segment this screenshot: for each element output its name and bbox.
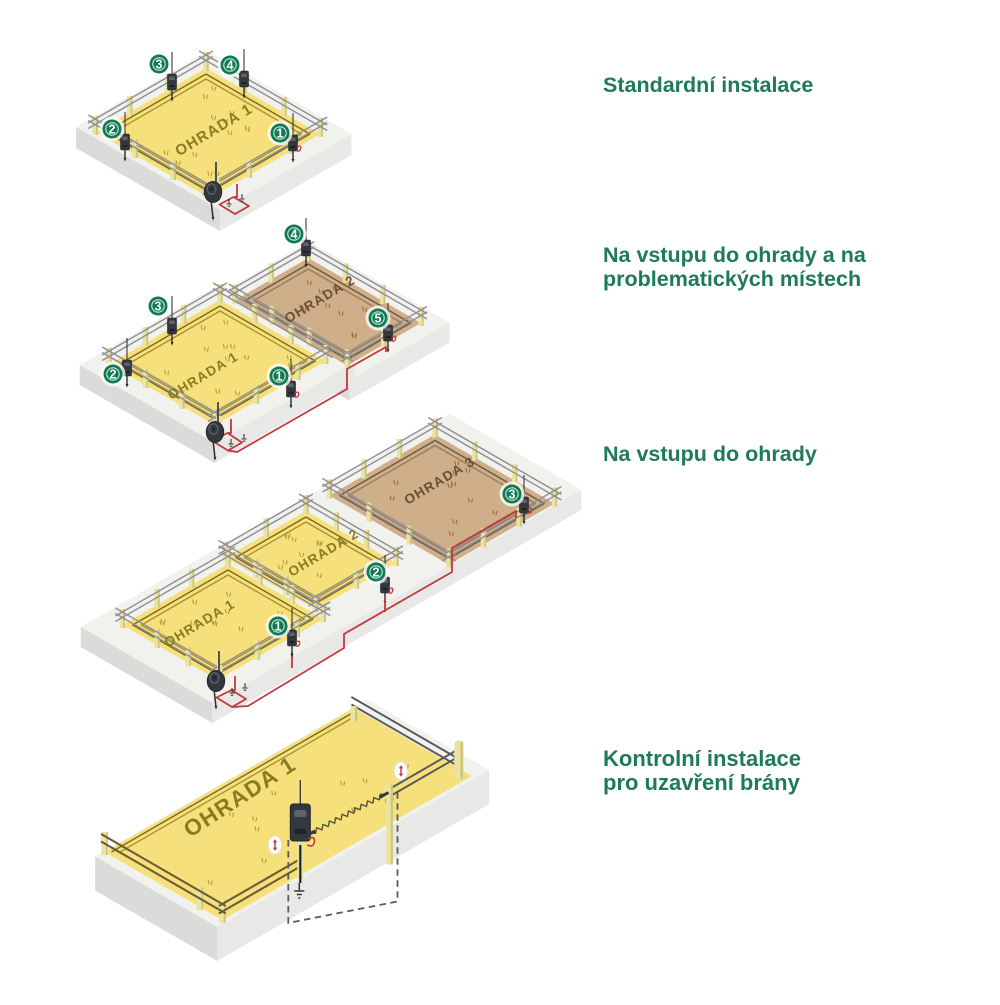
- svg-text:4: 4: [227, 58, 234, 72]
- svg-text:Kontrolní instalace: Kontrolní instalace: [603, 746, 801, 771]
- svg-text:3: 3: [155, 299, 162, 313]
- svg-text:Standardní instalace: Standardní instalace: [603, 73, 813, 97]
- svg-text:4: 4: [291, 227, 298, 241]
- svg-text:1: 1: [276, 369, 283, 383]
- svg-text:5: 5: [375, 311, 382, 325]
- svg-text:2: 2: [110, 367, 117, 381]
- svg-text:problematických místech: problematických místech: [603, 267, 861, 291]
- svg-text:1: 1: [275, 619, 282, 633]
- svg-text:2: 2: [109, 122, 116, 136]
- svg-text:2: 2: [373, 565, 380, 579]
- svg-text:3: 3: [509, 487, 516, 501]
- svg-text:pro uzavření brány: pro uzavření brány: [603, 770, 801, 795]
- svg-text:Na vstupu do ohrady: Na vstupu do ohrady: [603, 442, 817, 466]
- svg-text:1: 1: [277, 126, 284, 140]
- svg-text:3: 3: [156, 57, 163, 71]
- svg-text:Na vstupu do ohrady a na: Na vstupu do ohrady a na: [603, 243, 867, 267]
